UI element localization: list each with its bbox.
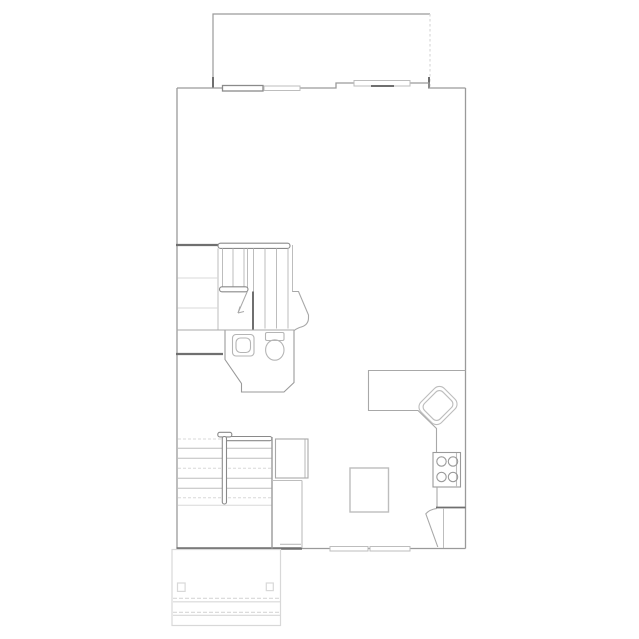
- porch-post: [178, 583, 186, 591]
- angled-wall-by-stair: [293, 292, 309, 331]
- counter-outline: [369, 371, 466, 453]
- front-porch: [172, 550, 281, 626]
- bottom-windows: [330, 547, 410, 552]
- entry-door-leaf: [426, 509, 438, 548]
- floor-plan-canvas: [0, 0, 639, 639]
- stair-up: [176, 243, 309, 330]
- kitchen: [350, 371, 466, 549]
- window: [330, 547, 368, 552]
- top-windows: [223, 81, 411, 92]
- entry-vestibule: [272, 481, 302, 549]
- floor-plan-page: [0, 0, 639, 639]
- sink-outer: [416, 384, 460, 428]
- stair-down: [178, 432, 272, 548]
- closet-outline: [276, 439, 309, 478]
- window: [223, 86, 264, 92]
- porch-outline: [172, 550, 281, 626]
- bathroom: [225, 331, 294, 393]
- kitchen-corner-sink: [416, 384, 460, 428]
- stair-treads-right: [254, 249, 289, 329]
- range-stove: [433, 453, 461, 488]
- porch-post: [266, 583, 273, 591]
- stair-direction-arrow: [238, 291, 248, 313]
- window: [370, 547, 410, 552]
- floor-plan: [172, 14, 466, 626]
- stair-rail-mid: [220, 287, 249, 292]
- stair-treads-left: [223, 249, 245, 288]
- top-wall: [177, 83, 466, 88]
- stair-rail-top: [218, 243, 290, 248]
- hall-floor-lines: [178, 278, 219, 308]
- rail-vertical: [222, 437, 226, 505]
- closet: [276, 439, 309, 478]
- deck-outline: [213, 14, 430, 88]
- upper-deck: [213, 14, 430, 88]
- kitchen-island: [350, 468, 389, 512]
- window: [264, 86, 300, 91]
